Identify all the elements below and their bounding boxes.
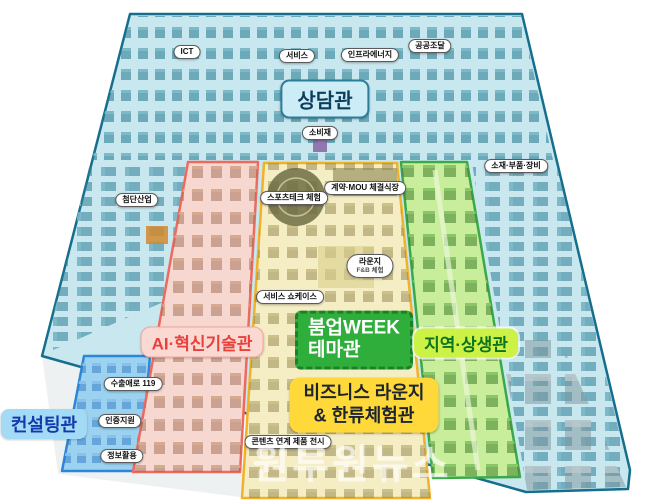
- pill-service-showcase: 서비스 쇼케이스: [256, 290, 324, 304]
- pill-infra-energy: 인프라에너지: [341, 48, 399, 62]
- pill-export-119: 수출애로 119: [104, 377, 163, 391]
- pill-mou-ceremony: 계약·MOU 체결식장: [324, 181, 406, 195]
- floor-map: ICT 서비스 인프라에너지 공공조달 소비재 첨단산업 소재·부품·장비 스포…: [0, 0, 650, 504]
- pill-sports-tech: 스포츠테크 체험: [260, 191, 328, 205]
- ai-hall-orange-booth: [146, 226, 168, 244]
- pill-certification-support: 인증지원: [98, 414, 141, 428]
- lounge-title: 라운지: [356, 257, 383, 267]
- boomup-line1: 붐업WEEK: [308, 318, 400, 340]
- pill-service: 서비스: [279, 49, 315, 63]
- badge-ai-innovation-hall: AI·혁신기술관: [141, 327, 264, 358]
- pill-ict: ICT: [174, 45, 201, 59]
- badge-business-lounge-hall: 비즈니스 라운지 & 한류체험관: [290, 378, 439, 433]
- pill-consumer-goods: 소비재: [302, 126, 338, 140]
- consumer-goods-booth: [313, 139, 327, 152]
- pill-materials-parts-equipment: 소재·부품·장비: [484, 159, 548, 173]
- pill-public-procurement: 공공조달: [408, 39, 451, 53]
- business-line1: 비즈니스 라운지: [304, 382, 425, 405]
- badge-regional-hall: 지역·상생관: [414, 329, 518, 358]
- pill-information-use: 정보활용: [100, 449, 143, 463]
- lounge-subtitle: F&B 체험: [356, 267, 383, 275]
- pill-advanced-industry: 첨단산업: [115, 193, 158, 207]
- news-watermark: 원투원뉴스: [253, 432, 452, 490]
- business-line2: & 한류체험관: [304, 405, 425, 428]
- badge-consulting-hall: 컨설팅관: [1, 409, 87, 439]
- badge-consultation-hall: 상담관: [280, 80, 369, 119]
- badge-boomup-week-hall: 붐업WEEK 테마관: [295, 311, 413, 370]
- boomup-line2: 테마관: [308, 340, 400, 362]
- pill-lounge: 라운지 F&B 체험: [346, 254, 393, 278]
